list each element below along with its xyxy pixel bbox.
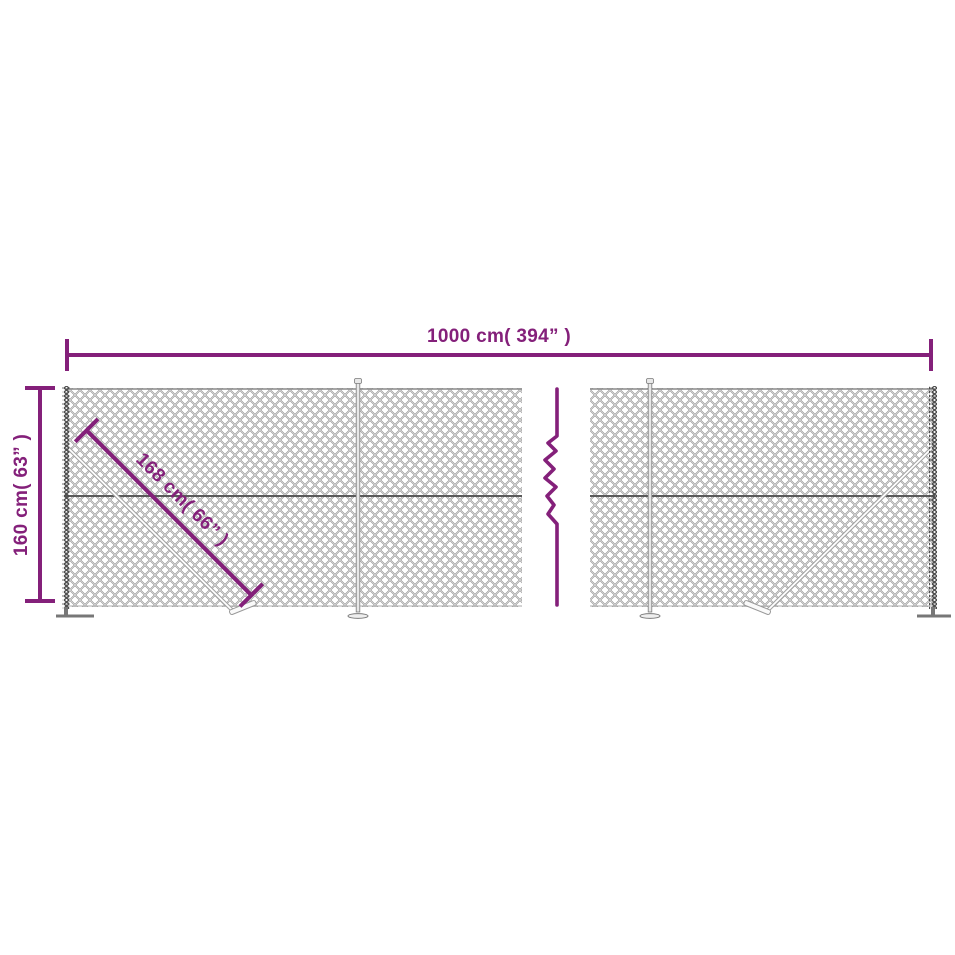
end-post-left-stem: [64, 607, 68, 615]
end-post-right: [929, 386, 937, 609]
chain-mesh-left: [65, 388, 522, 607]
diagram-stage: 1000 cm( 394” ) 160 cm( 63” ) 168 cm( 66…: [0, 0, 955, 955]
fence-section-right: [590, 379, 951, 619]
break-symbol-icon: [545, 389, 557, 605]
line-post-2-cap: [647, 379, 654, 384]
dimension-height-label: 160 cm( 63” ): [11, 434, 33, 556]
dimension-height-cap-top: [25, 386, 55, 390]
line-post-1-foot: [348, 614, 368, 619]
dimension-height-line: [38, 388, 42, 601]
line-post-2: [648, 382, 652, 612]
line-post-1-cap: [355, 379, 362, 384]
line-post-1: [356, 382, 360, 612]
dimension-width-line: [67, 353, 931, 357]
dimension-width-label: 1000 cm( 394” ): [67, 326, 931, 348]
end-post-right-stem: [931, 607, 935, 615]
fence-section-left: [56, 379, 522, 619]
end-post-left: [62, 386, 70, 609]
dimension-height-cap-bottom: [25, 599, 55, 603]
line-post-2-foot: [640, 614, 660, 619]
